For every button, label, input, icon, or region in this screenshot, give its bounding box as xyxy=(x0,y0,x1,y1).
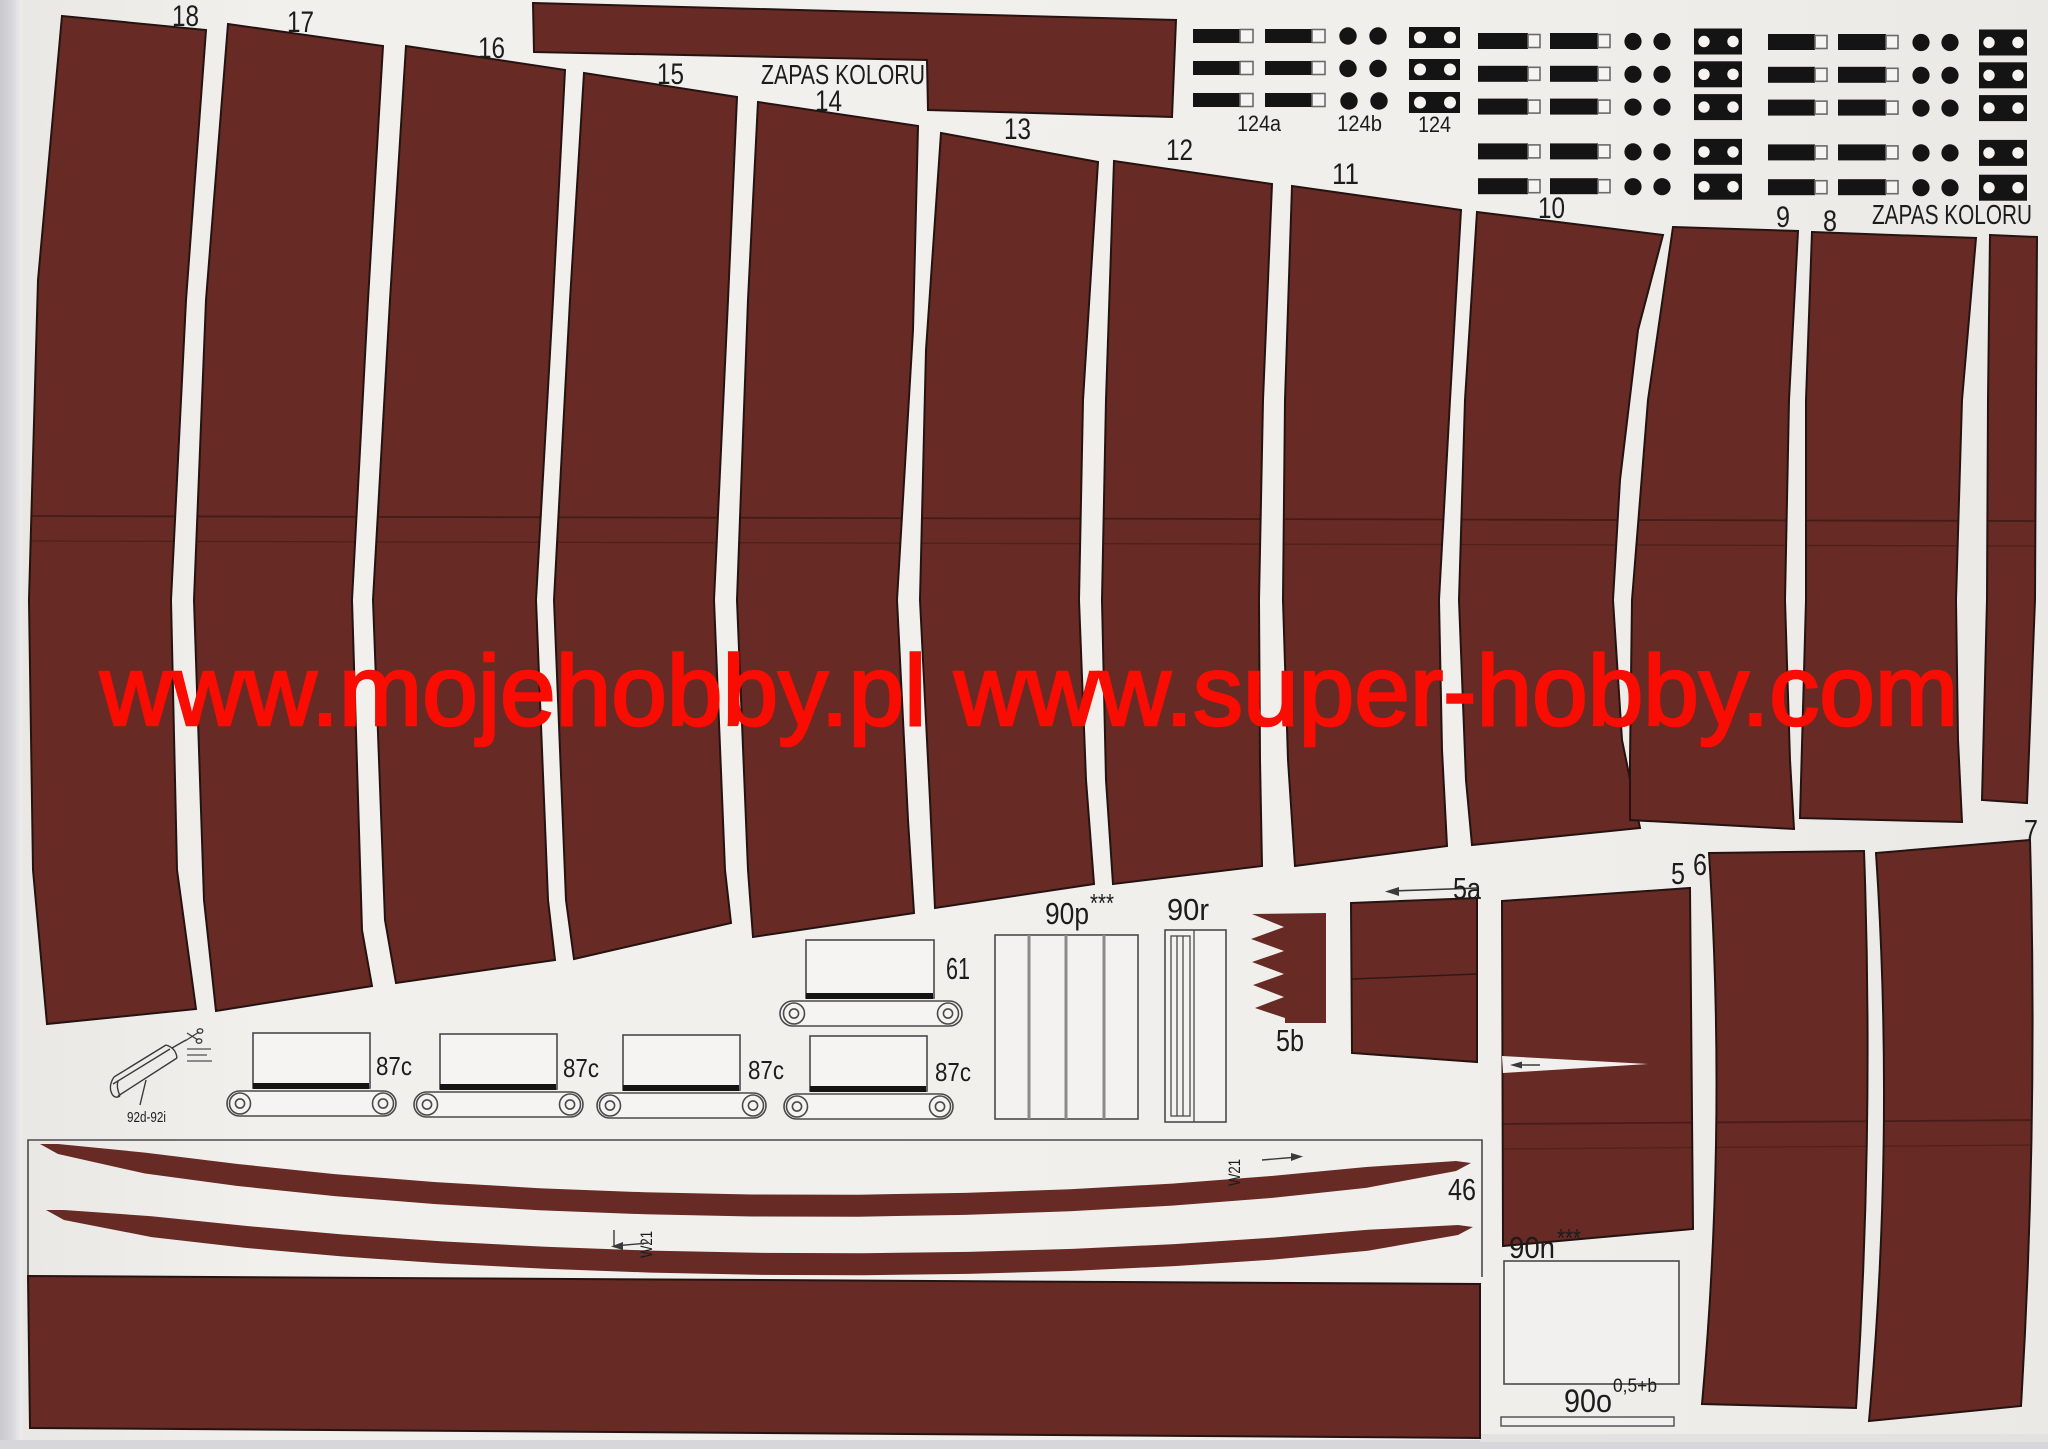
svg-text:9: 9 xyxy=(1776,201,1790,234)
svg-text:46: 46 xyxy=(1448,1172,1476,1207)
svg-text:16: 16 xyxy=(478,32,505,65)
svg-text:***: *** xyxy=(1557,1223,1581,1253)
svg-text:87c: 87c xyxy=(748,1055,784,1085)
svg-text:124b: 124b xyxy=(1337,111,1382,136)
svg-text:7: 7 xyxy=(2024,813,2038,848)
svg-text:15: 15 xyxy=(657,58,684,91)
svg-text:17: 17 xyxy=(287,6,314,39)
svg-text:8: 8 xyxy=(1823,205,1837,238)
svg-text:124a: 124a xyxy=(1237,111,1282,136)
svg-text:90o: 90o xyxy=(1564,1383,1612,1419)
svg-text:5b: 5b xyxy=(1276,1023,1304,1058)
svg-text:11: 11 xyxy=(1332,158,1359,191)
svg-text:87c: 87c xyxy=(935,1057,971,1087)
svg-text:5a: 5a xyxy=(1453,871,1482,906)
svg-text:12: 12 xyxy=(1166,134,1193,167)
svg-text:90n: 90n xyxy=(1509,1230,1555,1265)
svg-text:13: 13 xyxy=(1004,113,1031,146)
svg-text:18: 18 xyxy=(172,0,199,33)
svg-text:6: 6 xyxy=(1693,847,1707,882)
svg-text:0,5+b: 0,5+b xyxy=(1613,1376,1657,1397)
svg-text:ZAPAS KOLORU: ZAPAS KOLORU xyxy=(761,59,925,90)
svg-text:124: 124 xyxy=(1418,112,1451,137)
svg-text:***: *** xyxy=(1090,888,1114,918)
svg-text:92d-92i: 92d-92i xyxy=(127,1109,166,1126)
svg-text:10: 10 xyxy=(1538,192,1565,225)
svg-text:87c: 87c xyxy=(376,1051,412,1081)
svg-text:5: 5 xyxy=(1671,856,1685,891)
svg-text:90r: 90r xyxy=(1167,892,1209,927)
svg-text:W21: W21 xyxy=(1225,1159,1244,1186)
svg-text:87c: 87c xyxy=(563,1053,599,1083)
svg-text:W21: W21 xyxy=(637,1231,656,1258)
svg-text:90p: 90p xyxy=(1045,896,1089,931)
svg-text:ZAPAS KOLORU: ZAPAS KOLORU xyxy=(1872,199,2032,230)
svg-text:61: 61 xyxy=(946,951,970,986)
svg-text:www.mojehobby.pl www.super-hob: www.mojehobby.pl www.super-hobby.com xyxy=(99,635,1958,747)
